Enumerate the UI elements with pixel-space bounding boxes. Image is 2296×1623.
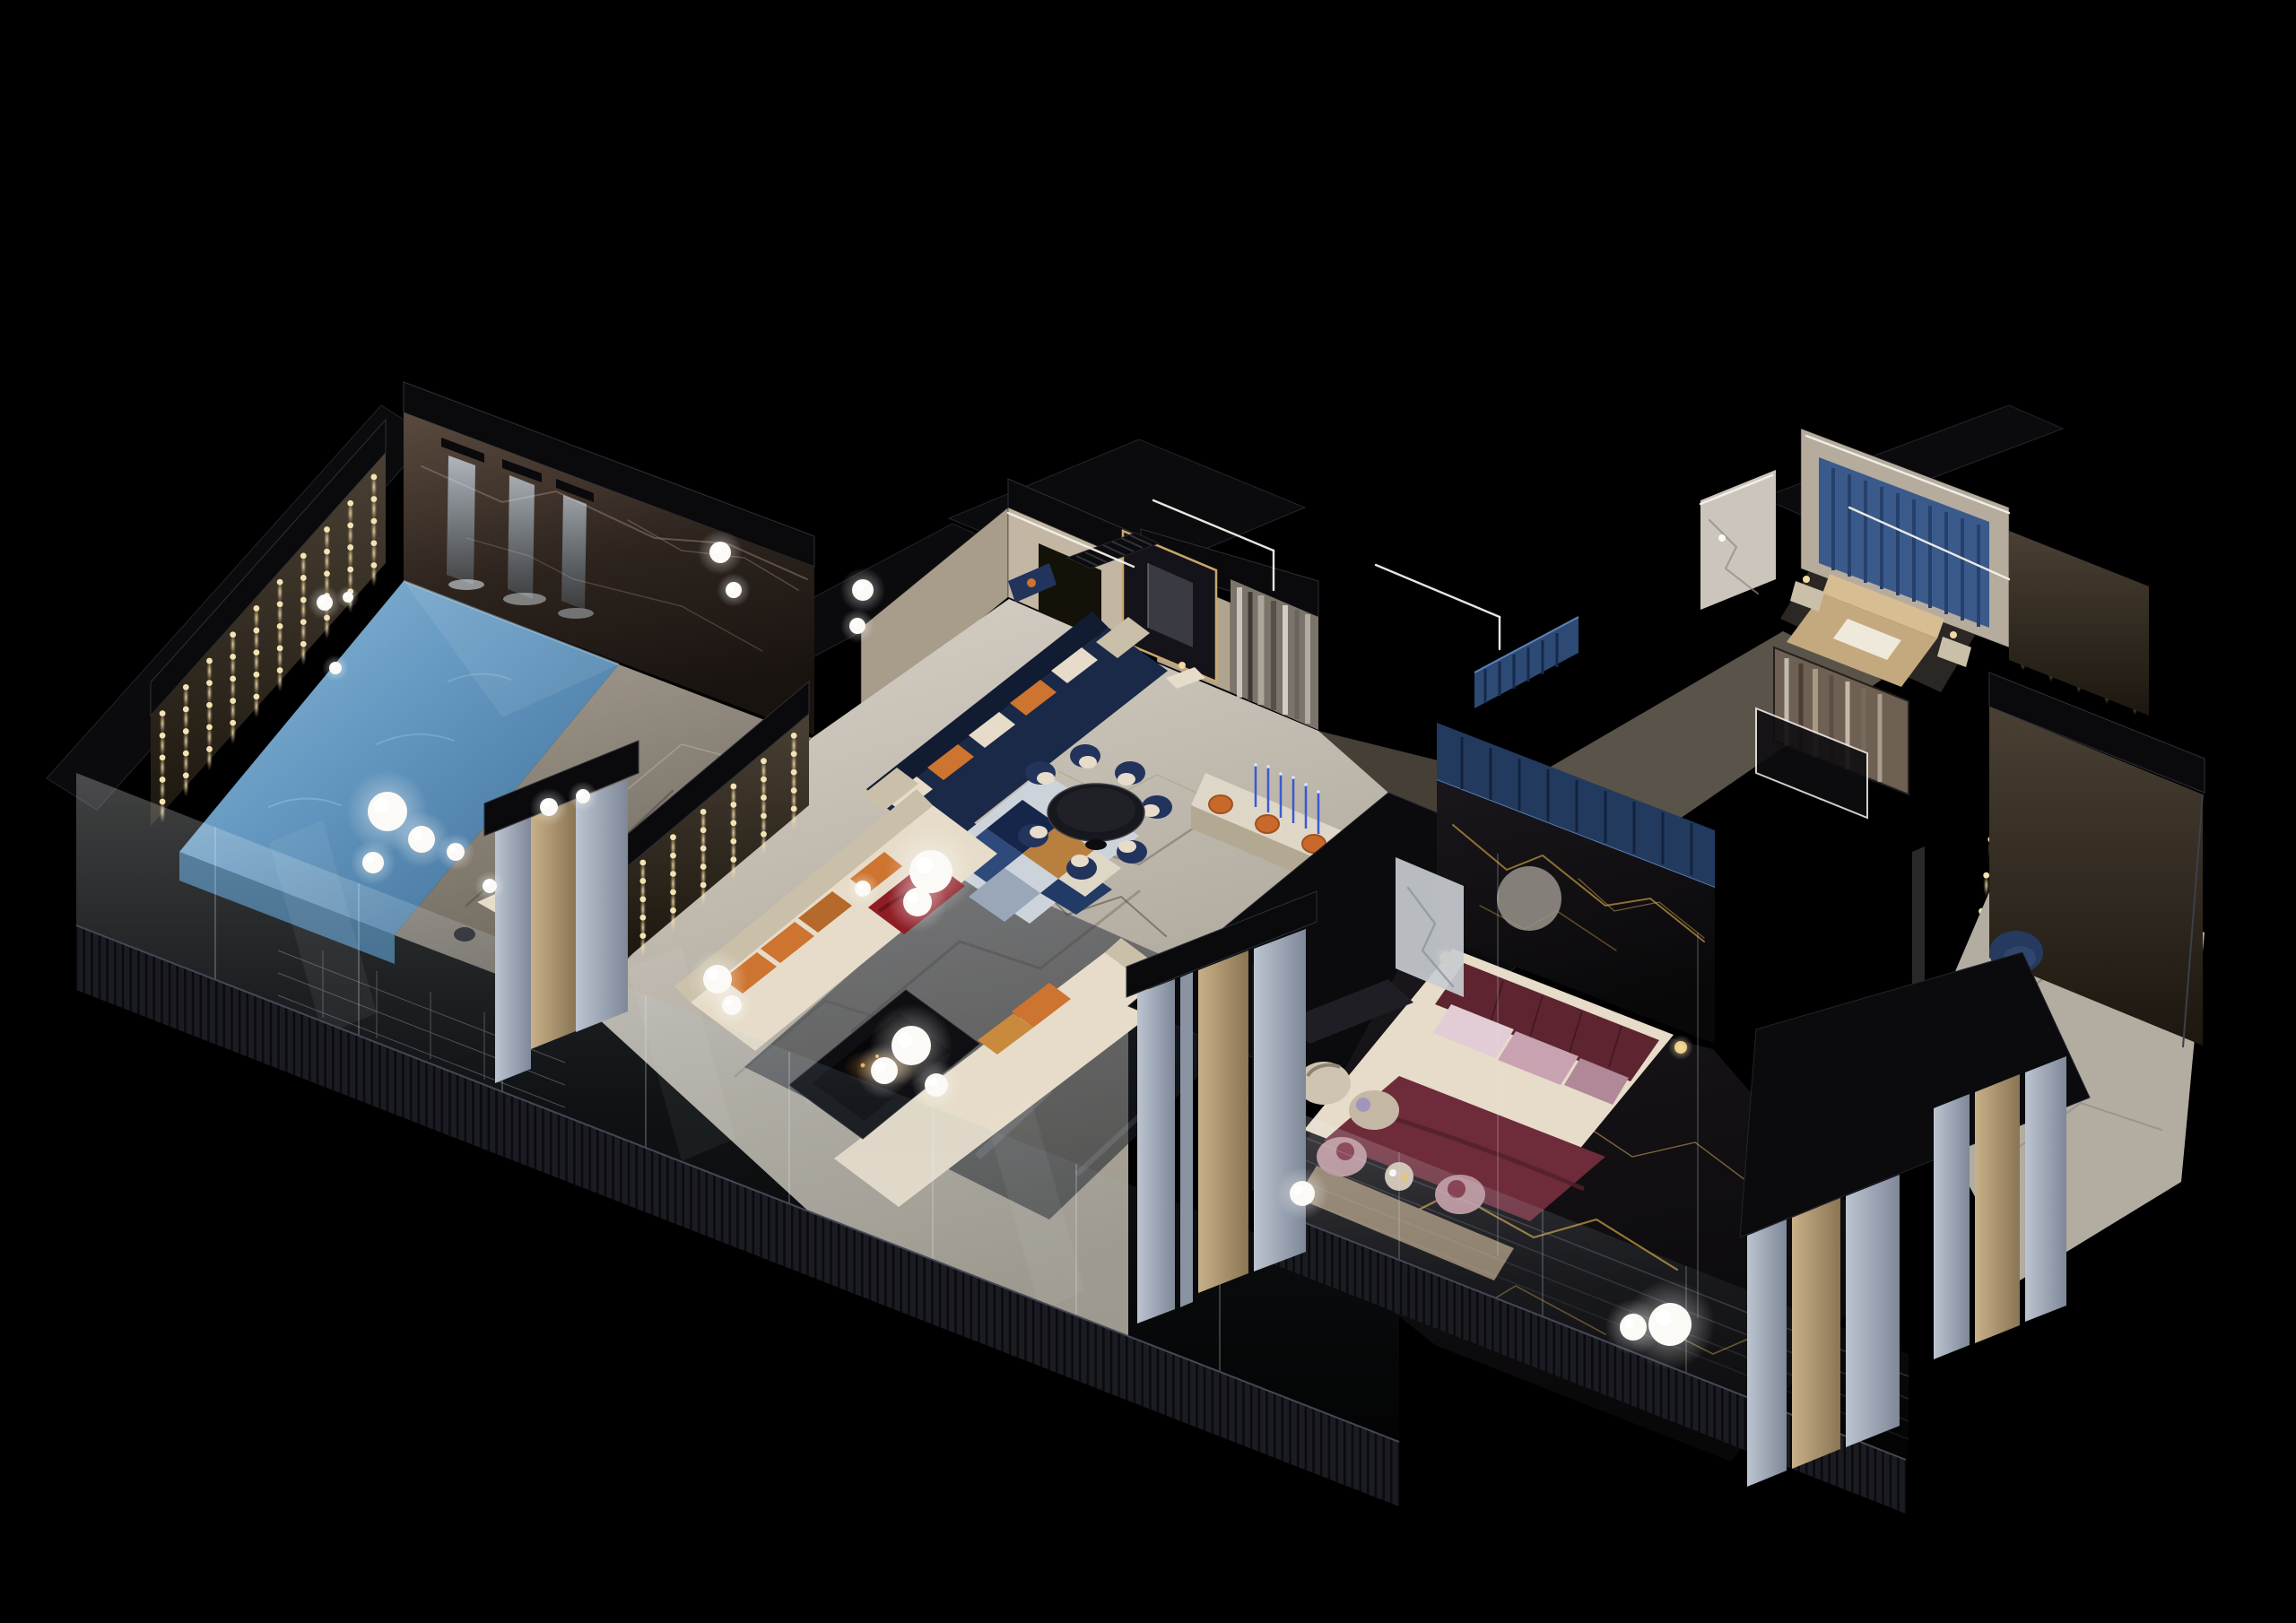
- steel-column: [1846, 1175, 1900, 1447]
- dining-table-top: [1057, 787, 1135, 832]
- wall-disc-light: [1497, 866, 1561, 931]
- brass-column: [1792, 1198, 1840, 1469]
- steel-column: [1747, 1219, 1787, 1487]
- dining-table-base: [1085, 839, 1107, 850]
- brass-column: [1198, 950, 1248, 1293]
- steel-column: [2025, 1056, 2066, 1322]
- brass-column: [531, 800, 576, 1049]
- steel-column: [1180, 972, 1193, 1307]
- table-lamp: [1803, 576, 1810, 583]
- gold-lamp-glow: [1668, 1035, 1693, 1060]
- chair-pillow: [1356, 1098, 1370, 1112]
- steel-column: [1137, 979, 1175, 1324]
- table-lamp: [1178, 662, 1186, 669]
- penthouse-cutaway-render: [0, 0, 2296, 1623]
- table-lamp: [1950, 631, 1957, 638]
- sculpt-chair: [1349, 1090, 1399, 1130]
- steel-column: [495, 818, 531, 1083]
- niche-orange-pillow: [1027, 578, 1036, 587]
- steel-column: [576, 779, 628, 1032]
- brass-column: [1975, 1074, 2020, 1343]
- steel-column: [1254, 929, 1306, 1271]
- steel-column: [1934, 1094, 1970, 1359]
